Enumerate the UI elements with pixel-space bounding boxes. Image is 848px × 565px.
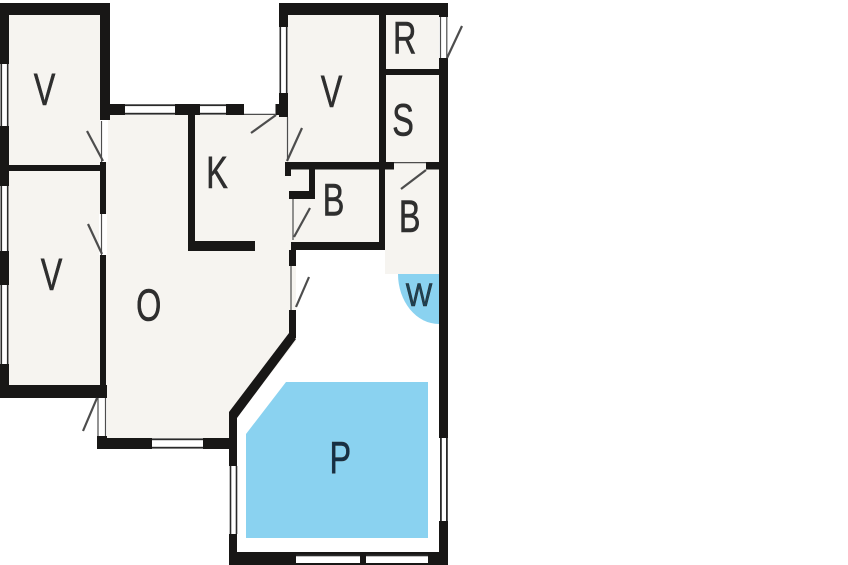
svg-text:S: S xyxy=(392,96,414,145)
svg-text:V: V xyxy=(41,251,63,300)
svg-text:V: V xyxy=(321,68,343,117)
svg-text:B: B xyxy=(399,193,421,242)
svg-text:K: K xyxy=(206,149,228,198)
svg-text:O: O xyxy=(136,281,161,330)
svg-text:V: V xyxy=(34,66,56,115)
svg-text:P: P xyxy=(329,434,351,483)
svg-text:W: W xyxy=(406,278,433,313)
svg-text:B: B xyxy=(323,177,345,226)
svg-text:R: R xyxy=(393,14,416,63)
